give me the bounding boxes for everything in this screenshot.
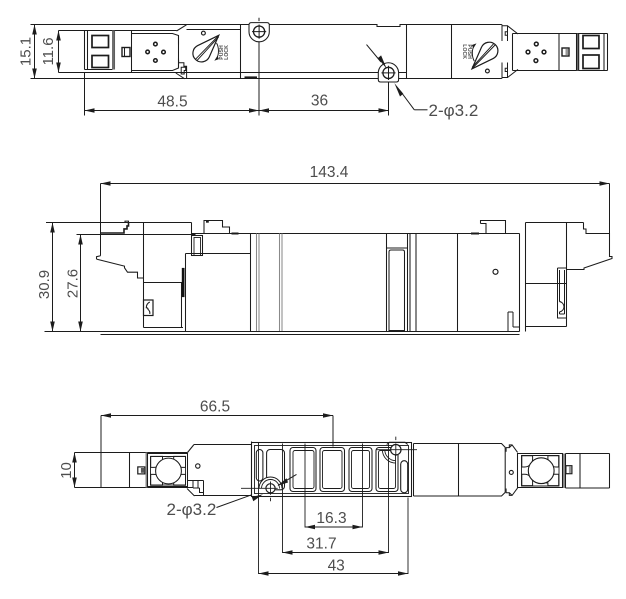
svg-text:10: 10 (58, 462, 75, 479)
svg-text:16.3: 16.3 (316, 510, 346, 527)
svg-text:48.5: 48.5 (157, 94, 187, 111)
svg-text:27.6: 27.6 (64, 269, 81, 298)
svg-text:2-φ3.2: 2-φ3.2 (167, 500, 217, 519)
svg-text:15.1: 15.1 (18, 37, 35, 66)
svg-text:143.4: 143.4 (310, 164, 349, 181)
svg-text:43: 43 (328, 558, 345, 575)
svg-text:36: 36 (311, 93, 328, 110)
svg-text:11.6: 11.6 (40, 37, 57, 65)
svg-text:2-φ3.2: 2-φ3.2 (429, 101, 479, 120)
svg-text:LOCK: LOCK (224, 45, 230, 60)
svg-text:30.9: 30.9 (36, 270, 53, 299)
svg-text:66.5: 66.5 (200, 399, 230, 416)
svg-text:31.7: 31.7 (306, 536, 336, 553)
